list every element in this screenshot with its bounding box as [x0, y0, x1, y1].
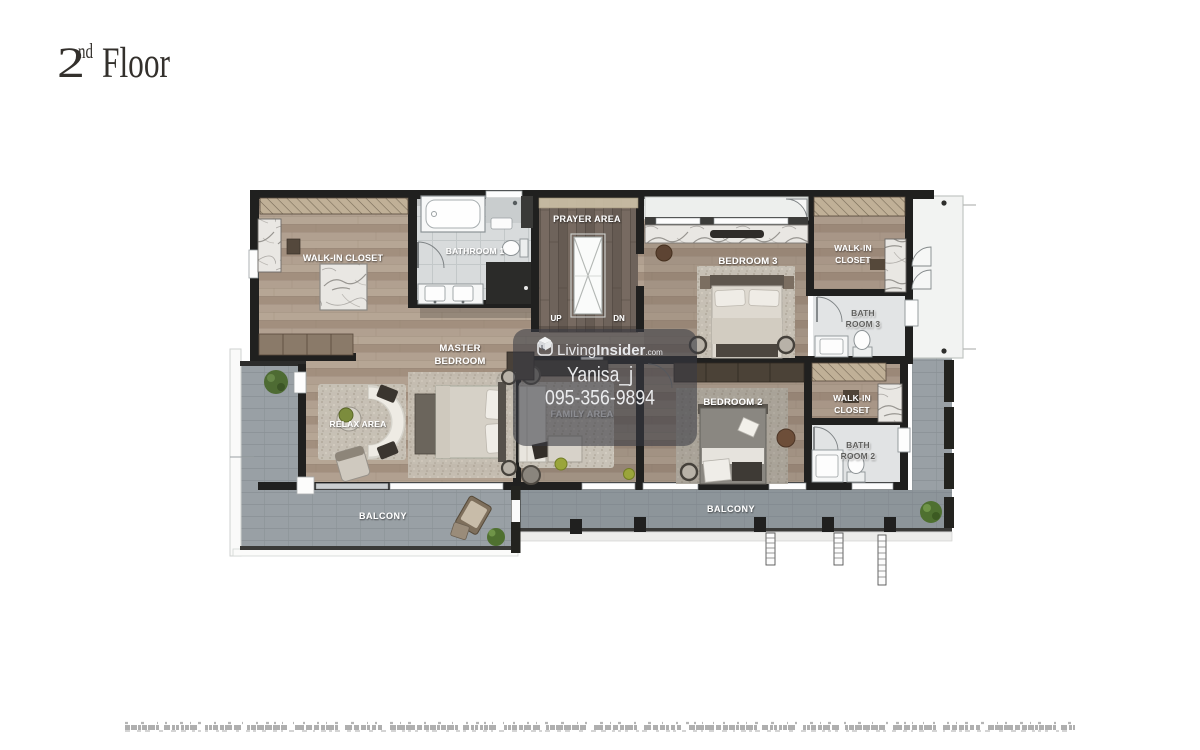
svg-text:UP: UP: [550, 314, 562, 323]
svg-text:BEDROOM 2: BEDROOM 2: [703, 397, 762, 408]
svg-text:095-356-9894: 095-356-9894: [545, 387, 655, 410]
svg-text:BALCONY: BALCONY: [359, 511, 407, 521]
svg-text:BATH: BATH: [851, 308, 875, 318]
svg-text:BEDROOM: BEDROOM: [434, 356, 485, 367]
svg-text:ROOM 3: ROOM 3: [846, 319, 881, 329]
svg-text:MASTER: MASTER: [439, 343, 480, 354]
svg-text:BATH: BATH: [846, 440, 870, 450]
svg-text:BEDROOM 3: BEDROOM 3: [718, 256, 777, 267]
svg-text:Floor: Floor: [102, 40, 170, 87]
svg-text:WALK-IN CLOSET: WALK-IN CLOSET: [303, 253, 384, 263]
svg-text:nd: nd: [78, 39, 93, 63]
svg-text:CLOSET: CLOSET: [834, 405, 870, 415]
svg-text:ROOM 2: ROOM 2: [841, 451, 876, 461]
svg-text:Yanisa_j: Yanisa_j: [567, 364, 633, 387]
svg-text:BATHROOM 1: BATHROOM 1: [446, 246, 505, 256]
svg-text:WALK-IN: WALK-IN: [833, 393, 871, 403]
svg-text:BALCONY: BALCONY: [707, 504, 755, 514]
svg-text:DN: DN: [613, 314, 625, 323]
svg-text:PRAYER AREA: PRAYER AREA: [553, 214, 621, 224]
svg-text:CLOSET: CLOSET: [835, 255, 871, 265]
svg-text:WALK-IN: WALK-IN: [834, 243, 872, 253]
svg-text:RELAX AREA: RELAX AREA: [330, 419, 387, 429]
